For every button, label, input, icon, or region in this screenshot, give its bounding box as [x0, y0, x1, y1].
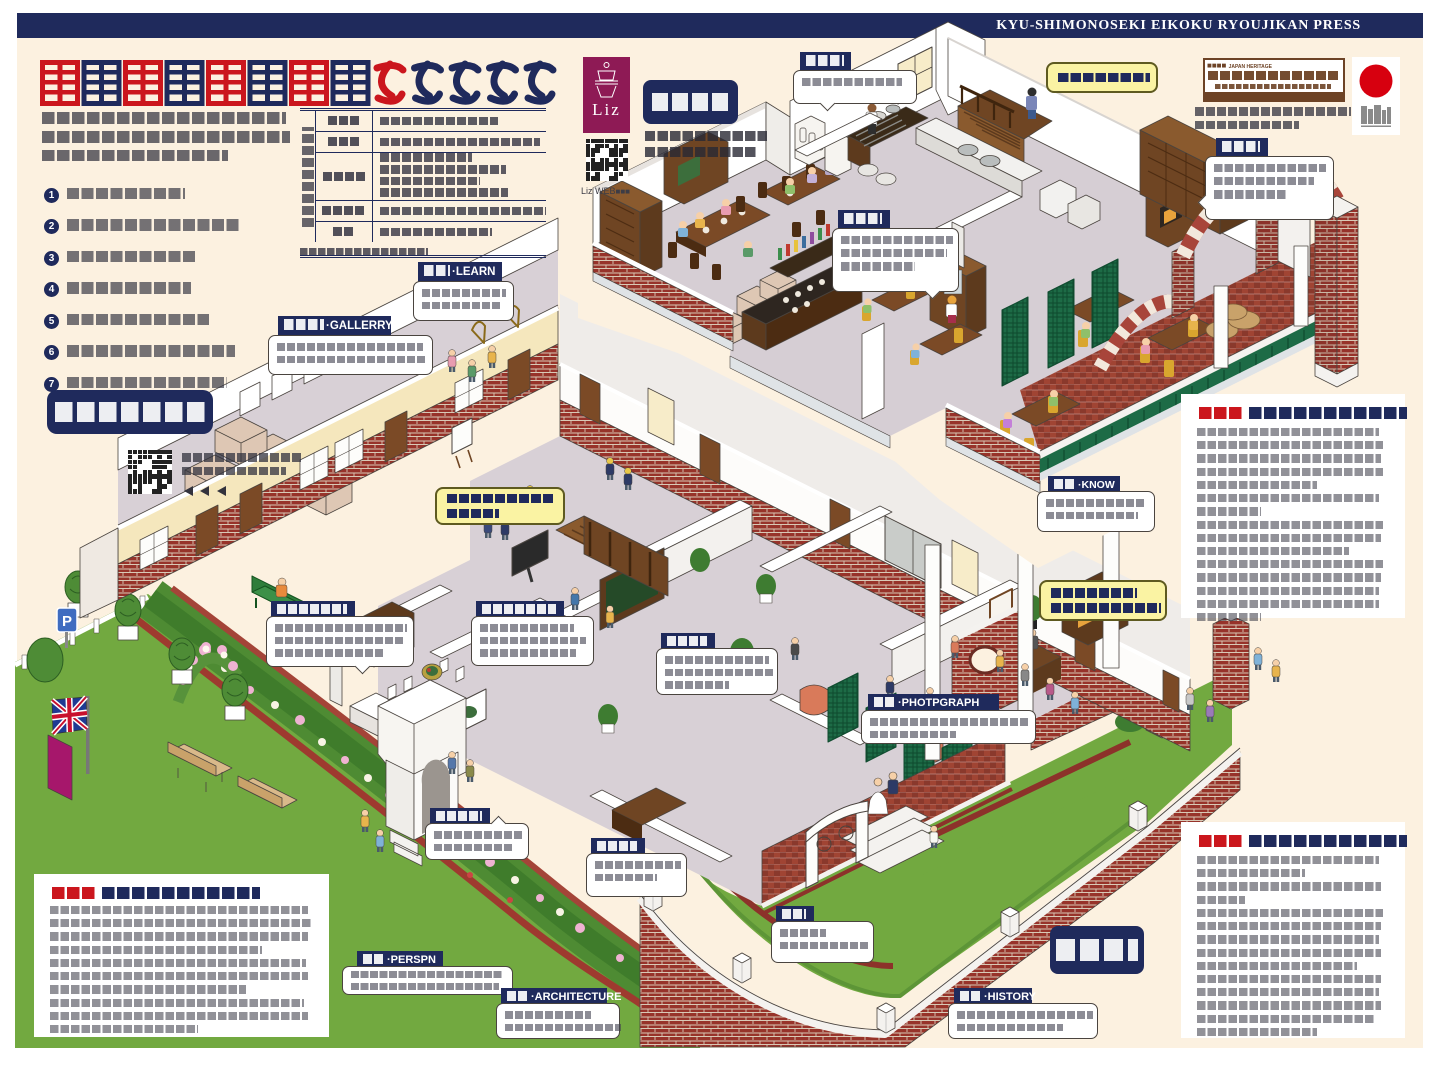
svg-text:P: P [62, 613, 72, 630]
